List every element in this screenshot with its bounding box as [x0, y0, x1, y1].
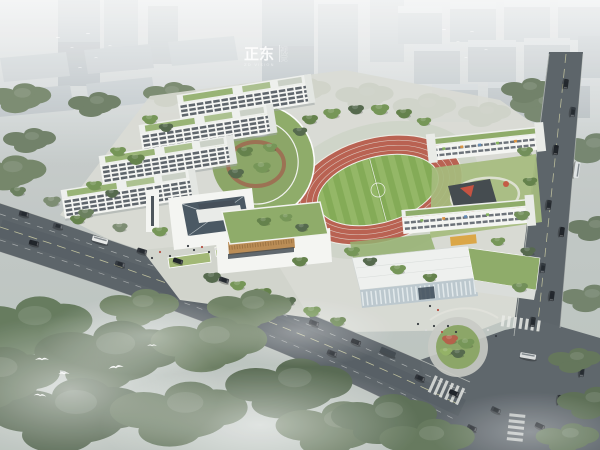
- aerial-rendering: 正东 视觉 ZD VISION: [0, 0, 600, 450]
- ground-fog: [0, 0, 600, 450]
- watermark-brand-sub: 视觉: [280, 45, 289, 63]
- watermark-brand: 正东: [244, 45, 274, 63]
- rendering-canvas: 正东 视觉 ZD VISION: [0, 0, 600, 450]
- watermark-tagline: ZD VISION: [244, 62, 275, 67]
